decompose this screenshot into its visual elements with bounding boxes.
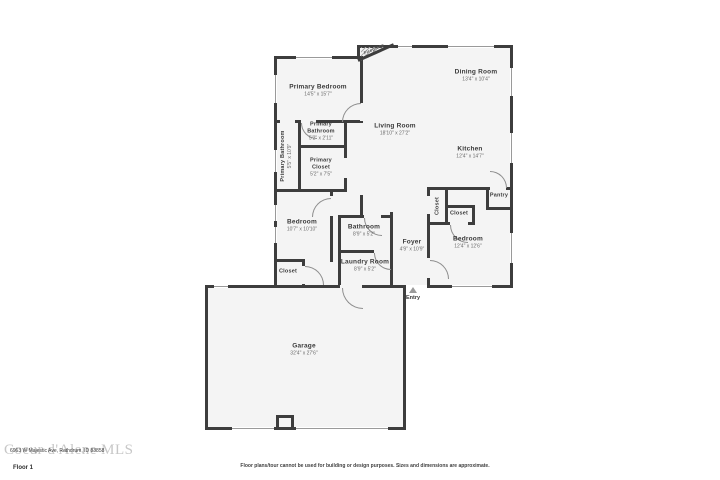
window: [296, 56, 332, 59]
address-text: 6963 W Majestic Ave, Rathdrum, ID 83858: [10, 448, 104, 454]
window: [448, 45, 494, 48]
wall-segment: [274, 259, 305, 262]
room-label-primary-bedroom: Primary Bedroom 14'5" x 15'7": [289, 84, 347, 99]
disclaimer-text: Floor plans/tour cannot be used for buil…: [240, 463, 489, 469]
entry-label: Entry: [406, 295, 420, 301]
room-label-closet-foyer: Closet: [434, 197, 441, 215]
room-label-primary-bathroom: Primary Bathroom 5'5" x 10'9": [280, 130, 294, 181]
room-name: Kitchen: [456, 146, 483, 154]
room-label-primary-bathroom-small: Primary Bathroom 5'2" x 2'11": [302, 122, 340, 143]
room-label-bedroom-right: Bedroom 12'4" x 12'6": [453, 236, 483, 251]
room-label-bathroom: Bathroom 8'9" x 5'2": [348, 224, 380, 239]
room-label-foyer: Foyer 4'9" x 10'9": [400, 239, 425, 254]
room-name: Primary Bathroom: [302, 122, 340, 136]
entry-arrow-icon: [409, 287, 417, 293]
room-label-bedroom-left: Bedroom 10'7" x 10'10": [287, 219, 317, 234]
room-dims: 18'10" x 27'2": [374, 131, 416, 138]
wall-segment: [298, 120, 301, 192]
room-label-laundry-room: Laundry Room 8'9" x 5'2": [341, 259, 389, 274]
window: [274, 205, 277, 221]
floor-plan: Fireplace Primary Bedroom 14'5" x 15'7" …: [0, 0, 720, 480]
window: [398, 45, 412, 48]
door-opening: [427, 196, 430, 214]
door-opening: [344, 158, 347, 178]
room-name: Closet: [434, 197, 441, 215]
wall-segment: [486, 207, 513, 210]
room-name: Foyer: [400, 239, 425, 247]
room-dims: 5'2" x 7'5": [302, 172, 340, 179]
garage-door: [296, 427, 388, 430]
wall-segment: [205, 285, 406, 288]
room-dims: 8'9" x 5'2": [348, 232, 380, 239]
window: [452, 285, 492, 288]
window: [510, 233, 513, 263]
room-name: Closet: [450, 210, 468, 217]
room-name: Closet: [279, 268, 297, 275]
window: [510, 133, 513, 163]
room-dims: 14'5" x 15'7": [289, 92, 347, 99]
room-label-dining-room: Dining Room 13'4" x 10'4": [455, 69, 498, 84]
wall-segment: [344, 120, 347, 192]
wall-segment: [445, 205, 475, 208]
room-dims: 5'5" x 10'9": [287, 130, 294, 181]
room-dims: 12'4" x 14'7": [456, 154, 483, 161]
room-name: Primary Bathroom: [280, 130, 287, 181]
room-dims: 8'9" x 5'2": [341, 267, 389, 274]
wall-segment: [298, 145, 347, 148]
room-label-closet-bedroom: Closet: [450, 210, 468, 217]
room-name: Bedroom: [453, 236, 483, 244]
room-label-primary-closet: Primary Closet 5'2" x 7'5": [302, 158, 340, 179]
wall-segment: [291, 415, 294, 429]
room-dims: 32'4" x 27'6": [290, 351, 317, 358]
window: [274, 227, 277, 243]
wall-segment: [403, 285, 406, 430]
floor-label: Floor 1: [13, 465, 33, 471]
room-label-garage: Garage 32'4" x 27'6": [290, 343, 317, 358]
room-label-living-room: Living Room 18'10" x 27'2": [374, 123, 416, 138]
window: [214, 285, 228, 288]
room-name: Dining Room: [455, 69, 498, 77]
room-name: Pantry: [490, 192, 508, 199]
wall-segment: [274, 189, 347, 192]
room-dims: 4'9" x 10'9": [400, 247, 425, 254]
room-dims: 10'7" x 10'10": [287, 227, 317, 234]
room-label-kitchen: Kitchen 12'4" x 14'7": [456, 146, 483, 161]
room-label-closet-left: Closet: [279, 268, 297, 275]
room-dims: 12'4" x 12'6": [453, 244, 483, 251]
window: [274, 150, 277, 172]
window: [274, 75, 277, 103]
room-name: Garage: [290, 343, 317, 351]
room-label-pantry: Pantry: [490, 192, 508, 199]
room-area-garage: [208, 288, 403, 427]
room-name: Living Room: [374, 123, 416, 131]
floor-plan-page: { "floorplan": { "colors": { "wall": "#3…: [0, 0, 720, 480]
room-dims: 5'2" x 2'11": [302, 136, 340, 143]
room-name: Laundry Room: [341, 259, 389, 267]
window: [510, 68, 513, 96]
room-name: Primary Closet: [302, 158, 340, 172]
room-name: Bedroom: [287, 219, 317, 227]
room-dims: 13'4" x 10'4": [455, 77, 498, 84]
room-name: Bathroom: [348, 224, 380, 232]
room-name: Primary Bedroom: [289, 84, 347, 92]
garage-door: [232, 427, 274, 430]
wall-segment: [205, 285, 208, 430]
door-opening: [280, 120, 295, 123]
